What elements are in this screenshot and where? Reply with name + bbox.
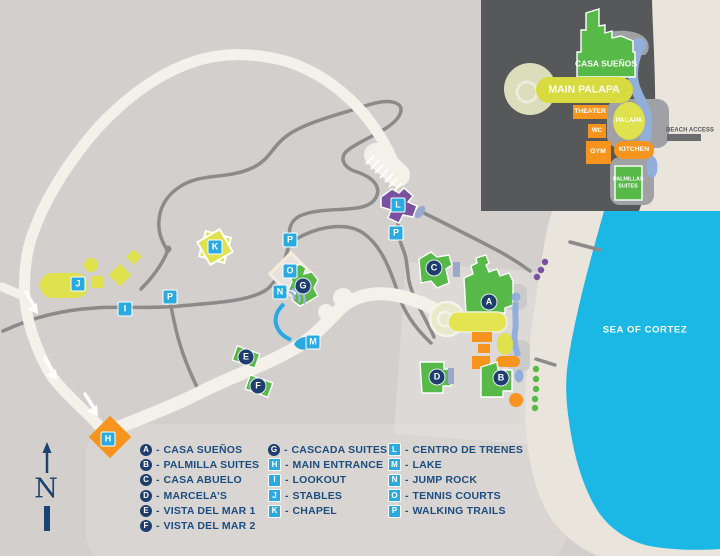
legend-marker-P: P — [388, 505, 401, 518]
legend-separator: - — [405, 474, 409, 486]
legend-column-2: G-CASCADA SUITESH-MAIN ENTRANCEI-LOOKOUT… — [268, 443, 387, 518]
legend-item-D: D-MARCELA’S — [140, 489, 259, 502]
legend-separator: - — [156, 520, 160, 532]
legend-label-A: CASA SUEÑOS — [164, 444, 243, 456]
legend-marker-G: G — [268, 444, 280, 456]
legend-marker-A: A — [140, 444, 152, 456]
legend-separator: - — [285, 459, 289, 471]
inset-label-palapa: PALAPA — [616, 117, 643, 125]
legend-item-M: M-LAKE — [388, 458, 523, 471]
inset-label-theater: THEATER — [574, 108, 606, 116]
legend-separator: - — [156, 444, 160, 456]
legend-label-B: PALMILLA SUITES — [164, 459, 260, 471]
legend-label-I: LOOKOUT — [293, 474, 347, 486]
legend-separator: - — [156, 474, 160, 486]
sea-of-cortez-label: SEA OF CORTEZ — [603, 325, 688, 336]
legend-label-O: TENNIS COURTS — [413, 490, 501, 502]
legend-item-C: C-CASA ABUELO — [140, 474, 259, 487]
legend-separator: - — [405, 459, 409, 471]
inset-label-palmillas-suites: PALMILLAS SUITES — [613, 176, 643, 190]
inset-label-kitchen: KITCHEN — [619, 146, 649, 154]
inset-label-wc: WC — [592, 127, 602, 135]
legend-separator: - — [156, 490, 160, 502]
legend-marker-J: J — [268, 489, 281, 502]
legend-label-N: JUMP ROCK — [413, 474, 478, 486]
compass-north-letter: N — [34, 474, 58, 505]
legend-marker-B: B — [140, 459, 152, 471]
legend-item-L: L-CENTRO DE TRENES — [388, 443, 523, 456]
legend-item-B: B-PALMILLA SUITES — [140, 458, 259, 471]
legend-separator: - — [405, 444, 409, 456]
legend-item-J: J-STABLES — [268, 489, 387, 502]
resort-map-canvas: ABCDEFGHIJKLMNOPPP CASA SUEÑOS MAIN PALA… — [0, 0, 720, 556]
legend-marker-L: L — [388, 443, 401, 456]
legend-label-G: CASCADA SUITES — [292, 444, 388, 456]
legend-label-D: MARCELA’S — [164, 490, 228, 502]
inset-label-gym: GYM — [590, 148, 605, 156]
legend-item-N: N-JUMP ROCK — [388, 474, 523, 487]
legend-marker-O: O — [388, 489, 401, 502]
legend-label-P: WALKING TRAILS — [413, 505, 506, 517]
inset-label-casa-suenos: CASA SUEÑOS — [575, 59, 637, 70]
legend-separator: - — [405, 490, 409, 502]
legend-item-A: A-CASA SUEÑOS — [140, 443, 259, 456]
legend-separator: - — [284, 444, 288, 456]
legend-separator: - — [285, 474, 289, 486]
legend-label-H: MAIN ENTRANCE — [293, 459, 384, 471]
legend-label-K: CHAPEL — [293, 505, 337, 517]
legend-label-E: VISTA DEL MAR 1 — [164, 505, 256, 517]
legend-separator: - — [405, 505, 409, 517]
legend-marker-I: I — [268, 474, 281, 487]
legend-marker-D: D — [140, 490, 152, 502]
legend-column-3: L-CENTRO DE TRENESM-LAKEN-JUMP ROCKO-TEN… — [388, 443, 523, 518]
legend-label-M: LAKE — [413, 459, 442, 471]
legend-marker-M: M — [388, 458, 401, 471]
legend-separator: - — [285, 490, 289, 502]
legend-item-H: H-MAIN ENTRANCE — [268, 458, 387, 471]
legend-separator: - — [156, 459, 160, 471]
legend-label-C: CASA ABUELO — [164, 474, 242, 486]
legend-marker-N: N — [388, 474, 401, 487]
legend-item-O: O-TENNIS COURTS — [388, 489, 523, 502]
legend-label-F: VISTA DEL MAR 2 — [164, 520, 256, 532]
legend-item-P: P-WALKING TRAILS — [388, 505, 523, 518]
legend-marker-F: F — [140, 520, 152, 532]
legend-item-G: G-CASCADA SUITES — [268, 443, 387, 456]
legend-column-1: A-CASA SUEÑOSB-PALMILLA SUITESC-CASA ABU… — [140, 443, 259, 533]
legend-marker-E: E — [140, 505, 152, 517]
legend-marker-H: H — [268, 458, 281, 471]
legend-label-J: STABLES — [293, 490, 343, 502]
legend-item-I: I-LOOKOUT — [268, 474, 387, 487]
inset-label-main-palapa: MAIN PALAPA — [548, 83, 619, 96]
legend-marker-K: K — [268, 505, 281, 518]
inset-label-beach-access: BEACH ACCESS — [666, 127, 714, 135]
legend-marker-C: C — [140, 474, 152, 486]
legend-label-L: CENTRO DE TRENES — [413, 444, 524, 456]
legend-separator: - — [285, 505, 289, 517]
legend-separator: - — [156, 505, 160, 517]
legend-item-F: F-VISTA DEL MAR 2 — [140, 520, 259, 533]
legend-item-E: E-VISTA DEL MAR 1 — [140, 505, 259, 518]
legend-item-K: K-CHAPEL — [268, 505, 387, 518]
